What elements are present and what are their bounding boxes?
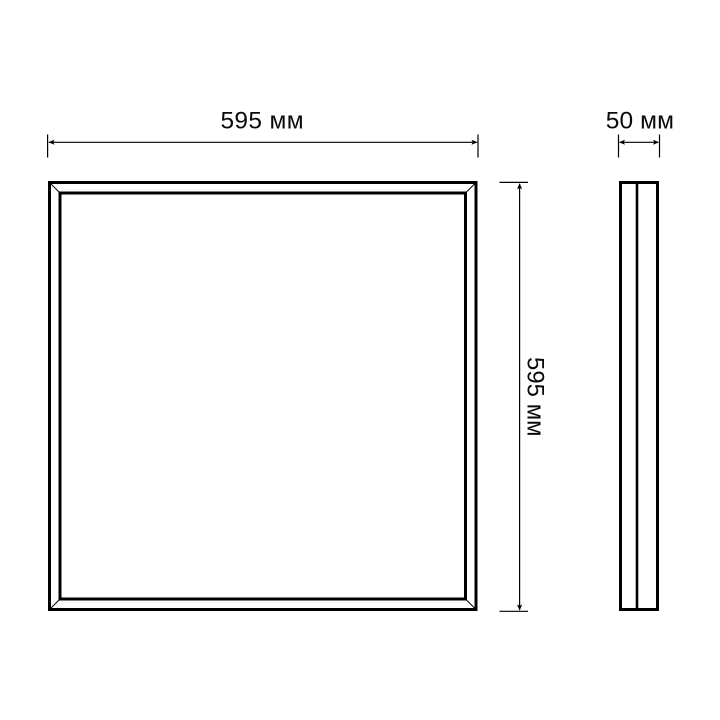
svg-text:595 мм: 595 мм: [521, 357, 548, 437]
svg-text:50 мм: 50 мм: [606, 108, 674, 135]
svg-text:595 мм: 595 мм: [220, 108, 303, 135]
